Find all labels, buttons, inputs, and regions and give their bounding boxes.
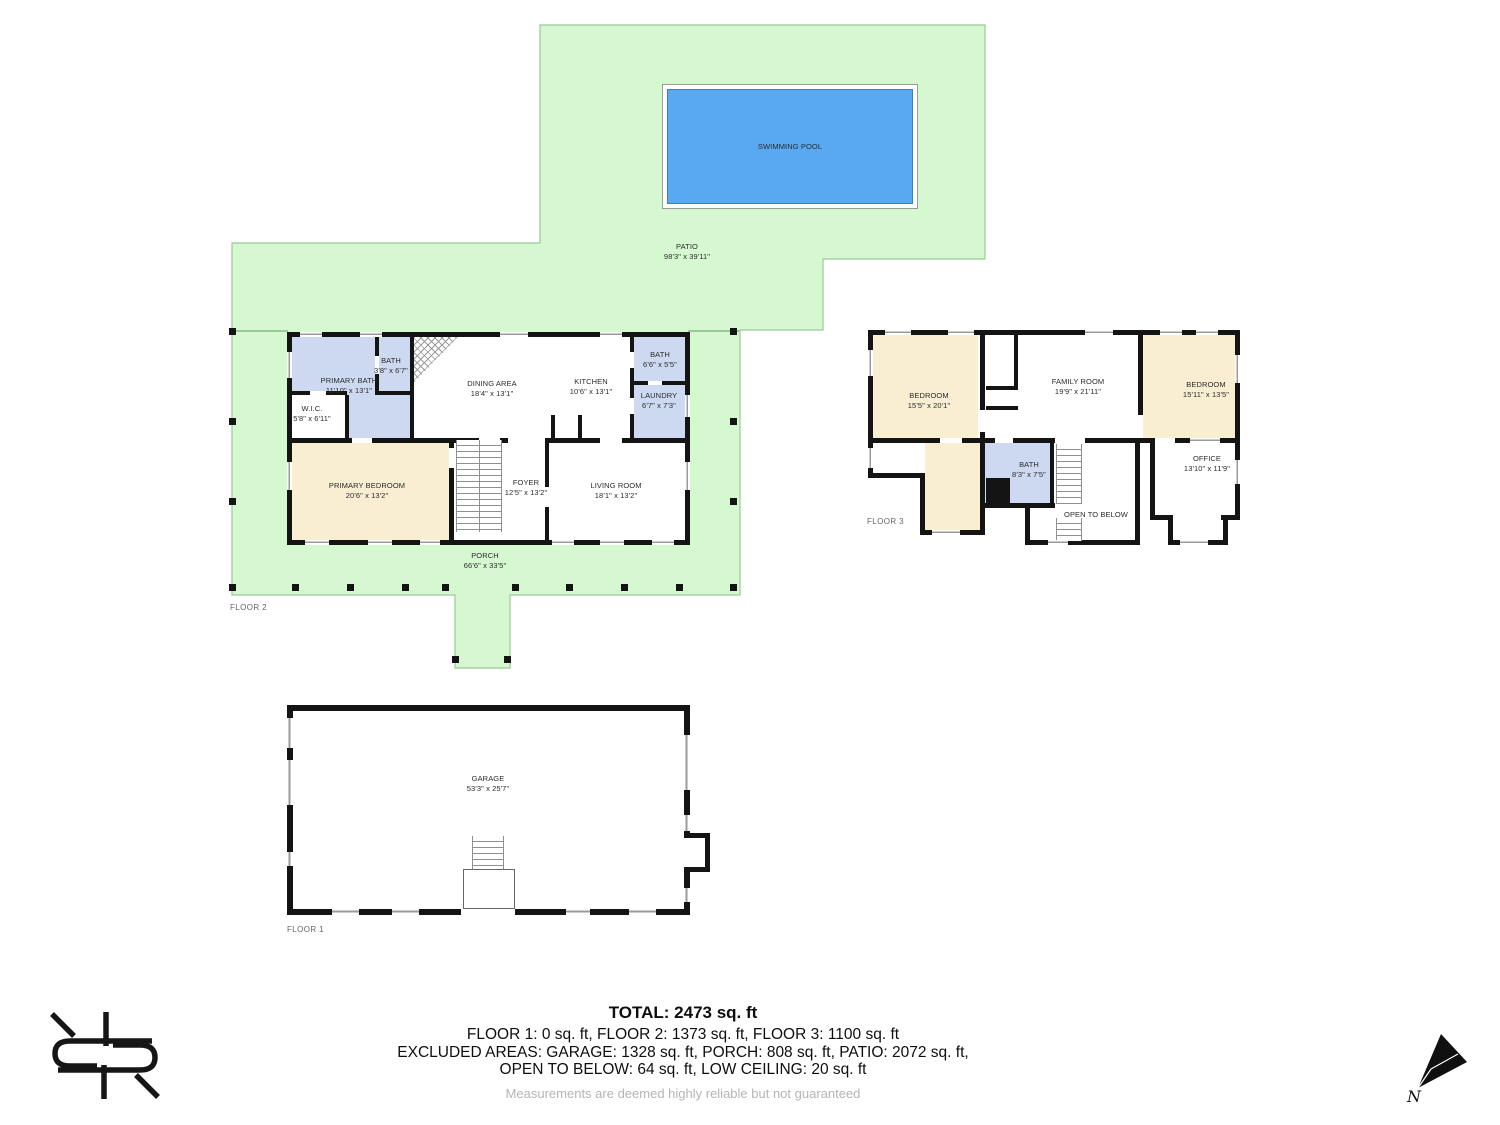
porch-post: [229, 498, 236, 505]
room-dims: 19'9" x 21'11": [1052, 387, 1105, 397]
room-name: FOYER: [505, 478, 547, 488]
north-arrow-icon: N: [1403, 1024, 1488, 1104]
door-opening: [600, 438, 622, 443]
porch-post: [730, 584, 737, 591]
porch-post: [402, 584, 409, 591]
porch-post: [730, 498, 737, 505]
total-area-text: TOTAL: 2473 sq. ft: [33, 1003, 1333, 1023]
window: [368, 540, 392, 545]
room-name: DINING AREA: [467, 379, 516, 389]
staircase: [472, 836, 504, 870]
window: [287, 462, 292, 490]
window: [684, 888, 690, 902]
excluded-areas-text: EXCLUDED AREAS: GARAGE: 1328 sq. ft, POR…: [33, 1044, 1333, 1062]
wall: [1025, 503, 1030, 545]
window: [420, 540, 440, 545]
laundry-label: LAUNDRY 6'7" x 7'3": [641, 391, 677, 411]
wall: [287, 705, 690, 711]
wall: [986, 406, 1018, 410]
room-name: OPEN TO BELOW: [1064, 510, 1128, 520]
porch-post: [347, 584, 354, 591]
window: [885, 330, 911, 335]
disclaimer-text: Measurements are deemed highly reliable …: [33, 1086, 1333, 1101]
door-opening: [449, 448, 454, 468]
room-dims: 6'7" x 7'3": [641, 401, 677, 411]
window: [305, 540, 329, 545]
wall: [1135, 443, 1140, 545]
wall: [1014, 335, 1018, 390]
bath-label: BATH 8'3" x 7'5": [1012, 460, 1046, 480]
porch-post: [730, 418, 737, 425]
room-dims: 15'11" x 13'5": [1183, 390, 1229, 400]
door-opening: [648, 381, 662, 385]
room-name: GARAGE: [467, 774, 509, 784]
window: [287, 352, 292, 378]
wall: [868, 330, 1240, 335]
porch-post: [229, 418, 236, 425]
room-dims: 11'10" x 13'1": [321, 386, 378, 396]
window: [600, 540, 624, 545]
room-name: LIVING ROOM: [590, 481, 641, 491]
excluded-areas-text2: OPEN TO BELOW: 64 sq. ft, LOW CEILING: 2…: [33, 1061, 1333, 1079]
window: [868, 350, 873, 376]
wall: [551, 415, 555, 438]
primary-bedroom-label: PRIMARY BEDROOM 20'6" x 13'2": [329, 481, 405, 501]
door-opening: [630, 398, 634, 414]
kitchen-label: KITCHEN 10'6" x 13'1": [570, 377, 612, 397]
window: [500, 332, 528, 337]
room-name: PATIO: [664, 242, 710, 252]
pool-label: SWIMMING POOL: [758, 142, 822, 152]
bedroom-left-area: [925, 438, 980, 530]
window: [287, 718, 293, 748]
window: [392, 909, 419, 915]
wall: [1050, 443, 1054, 505]
window: [629, 909, 656, 915]
door-opening: [980, 410, 985, 432]
logo-monogram: [40, 1008, 170, 1103]
window: [652, 540, 674, 545]
family-room-label: FAMILY ROOM 19'9" x 21'11": [1052, 377, 1105, 397]
wall: [868, 473, 925, 478]
porch-post: [504, 656, 511, 663]
window: [684, 815, 690, 831]
wall: [345, 395, 349, 440]
room-dims: 6'6" x 5'5": [643, 360, 677, 370]
window: [685, 462, 690, 490]
window: [684, 735, 690, 790]
room-dims: 20'6" x 13'2": [329, 491, 405, 501]
bath-small-label: BATH 3'8" x 6'7": [374, 356, 408, 376]
door-opening: [1138, 415, 1143, 438]
room-dims: 3'8" x 6'7": [374, 366, 408, 376]
porch-label: PORCH 66'6" x 33'5": [464, 551, 506, 571]
stair-opening: [1055, 438, 1085, 443]
room-dims: 53'3" x 25'7": [467, 784, 509, 794]
porch-post: [730, 328, 737, 335]
door-opening: [352, 438, 372, 443]
porch-post: [292, 584, 299, 591]
room-dims: 15'5" x 20'1": [908, 401, 950, 411]
north-label: N: [1406, 1087, 1422, 1104]
patio-label: PATIO 98'3" x 39'11": [664, 242, 710, 262]
window: [1180, 540, 1208, 545]
room-name: PRIMARY BEDROOM: [329, 481, 405, 491]
window: [1190, 438, 1220, 443]
floor2-tag: FLOOR 2: [230, 603, 267, 612]
door-opening: [630, 352, 634, 368]
window: [1048, 540, 1068, 545]
open-to-below-label: OPEN TO BELOW: [1064, 510, 1128, 520]
room-name: W.I.C.: [293, 404, 331, 414]
opening: [461, 909, 515, 915]
window: [1085, 330, 1113, 335]
room-dims: 12'5" x 13'2": [505, 488, 547, 498]
wic-label: W.I.C. 5'8" x 6'11": [293, 404, 331, 424]
stair-rail: [479, 440, 480, 532]
wall: [292, 438, 455, 443]
room-dims: 18'1" x 13'2": [590, 491, 641, 501]
door-opening: [940, 438, 962, 443]
porch-post: [621, 584, 628, 591]
window: [1196, 330, 1218, 335]
room-dims: 98'3" x 39'11": [664, 252, 710, 262]
window: [932, 530, 960, 535]
window: [287, 852, 293, 866]
room-name: LAUNDRY: [641, 391, 677, 401]
window: [566, 909, 590, 915]
room-name: BATH: [374, 356, 408, 366]
wall: [986, 386, 1018, 390]
room-name: BATH: [1012, 460, 1046, 470]
window: [1235, 355, 1240, 383]
room-name: BEDROOM: [908, 391, 950, 401]
porch-post: [512, 584, 519, 591]
wall: [578, 415, 582, 438]
bedroom-left-label: BEDROOM 15'5" x 20'1": [908, 391, 950, 411]
window: [332, 909, 359, 915]
room-dims: 13'10" x 11'9": [1184, 464, 1230, 474]
porch-post: [566, 584, 573, 591]
window: [948, 330, 974, 335]
door-opening: [1155, 438, 1175, 443]
bedroom-right-label: BEDROOM 15'11" x 13'5": [1183, 380, 1229, 400]
entry-vestibule: [463, 869, 515, 909]
floor1-tag: FLOOR 1: [287, 925, 324, 934]
porch-post: [442, 584, 449, 591]
porch-post: [229, 584, 236, 591]
dining-area-label: DINING AREA 18'4" x 13'1": [467, 379, 516, 399]
wall: [410, 337, 414, 440]
wall: [287, 540, 690, 545]
low-ceiling-area: [986, 478, 1010, 504]
garage-label: GARAGE 53'3" x 25'7": [467, 774, 509, 794]
floor-areas-text: FLOOR 1: 0 sq. ft, FLOOR 2: 1373 sq. ft,…: [33, 1026, 1333, 1044]
porch-post: [229, 328, 236, 335]
door-opening: [684, 838, 690, 868]
room-name: KITCHEN: [570, 377, 612, 387]
window: [360, 332, 382, 337]
wall: [1025, 540, 1140, 545]
room-name: BATH: [643, 350, 677, 360]
porch-post: [452, 656, 459, 663]
wall: [868, 438, 925, 443]
room-dims: 8'3" x 7'5": [1012, 470, 1046, 480]
floor3-tag: FLOOR 3: [867, 517, 904, 526]
staircase: [1056, 444, 1082, 504]
porch-post: [676, 584, 683, 591]
living-room-label: LIVING ROOM 18'1" x 13'2": [590, 481, 641, 501]
wall: [985, 503, 1055, 508]
door-opening: [995, 438, 1013, 443]
room-name: FAMILY ROOM: [1052, 377, 1105, 387]
floor-plan-sheet: SWIMMING POOL PATIO 98'3" x 39'11": [0, 0, 1500, 1125]
room-dims: 5'8" x 6'11": [293, 414, 331, 424]
window: [552, 540, 574, 545]
porch-boundary-line: [232, 330, 288, 332]
room-name: SWIMMING POOL: [758, 142, 822, 152]
staircase: [1056, 518, 1082, 541]
wall: [1223, 515, 1228, 545]
window: [600, 332, 622, 337]
window: [868, 448, 873, 468]
room-dims: 18'4" x 13'1": [467, 389, 516, 399]
bath-label: BATH 6'6" x 5'5": [643, 350, 677, 370]
room-name: BEDROOM: [1183, 380, 1229, 390]
window: [287, 760, 293, 805]
foyer-label: FOYER 12'5" x 13'2": [505, 478, 547, 498]
wall: [684, 867, 710, 872]
office-label: OFFICE 13'10" x 11'9": [1184, 454, 1230, 474]
primary-bath-label: PRIMARY BATH 11'10" x 13'1": [321, 376, 378, 396]
window: [1235, 460, 1240, 484]
window: [1160, 330, 1182, 335]
window: [685, 395, 690, 417]
room-name: OFFICE: [1184, 454, 1230, 464]
window: [300, 332, 322, 337]
wall: [1150, 443, 1155, 520]
area-summary: TOTAL: 2473 sq. ft FLOOR 1: 0 sq. ft, FL…: [33, 1003, 1333, 1079]
room-dims: 66'6" x 33'5": [464, 561, 506, 571]
room-dims: 10'6" x 13'1": [570, 387, 612, 397]
wall: [375, 391, 414, 395]
room-name: PRIMARY BATH: [321, 376, 378, 386]
wall: [920, 473, 925, 535]
room-name: PORCH: [464, 551, 506, 561]
bedroom-left-area: [873, 335, 978, 438]
